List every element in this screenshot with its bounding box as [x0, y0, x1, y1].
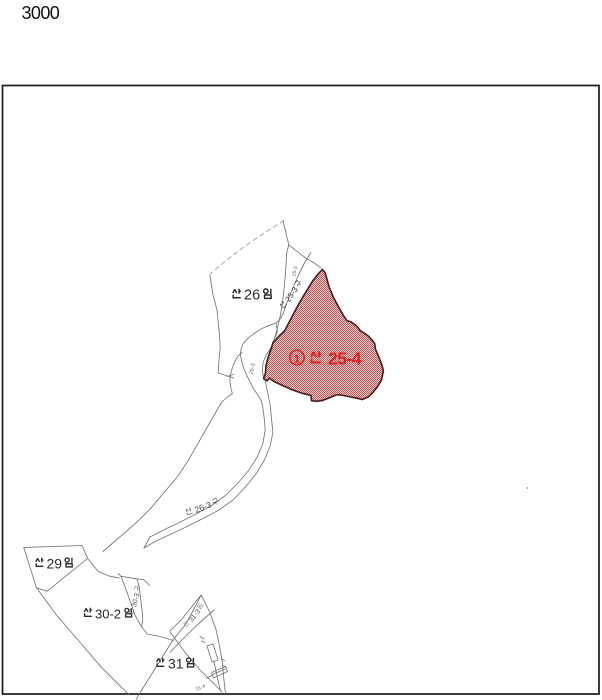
- svg-text:26-3: 26-3: [249, 363, 257, 375]
- svg-text:31: 31: [168, 655, 184, 671]
- svg-text:1: 1: [294, 354, 300, 366]
- svg-text:30-2: 30-2: [95, 607, 121, 622]
- svg-text:25-4: 25-4: [328, 349, 362, 369]
- svg-text:31-4: 31-4: [195, 683, 207, 693]
- svg-text:31-3: 31-3: [188, 608, 202, 623]
- svg-text:30-3: 30-3: [131, 593, 141, 608]
- svg-text:25-3: 25-3: [283, 285, 300, 304]
- svg-text:26-3: 26-3: [193, 499, 213, 515]
- svg-text:26: 26: [244, 288, 260, 304]
- svg-text:29: 29: [47, 555, 63, 571]
